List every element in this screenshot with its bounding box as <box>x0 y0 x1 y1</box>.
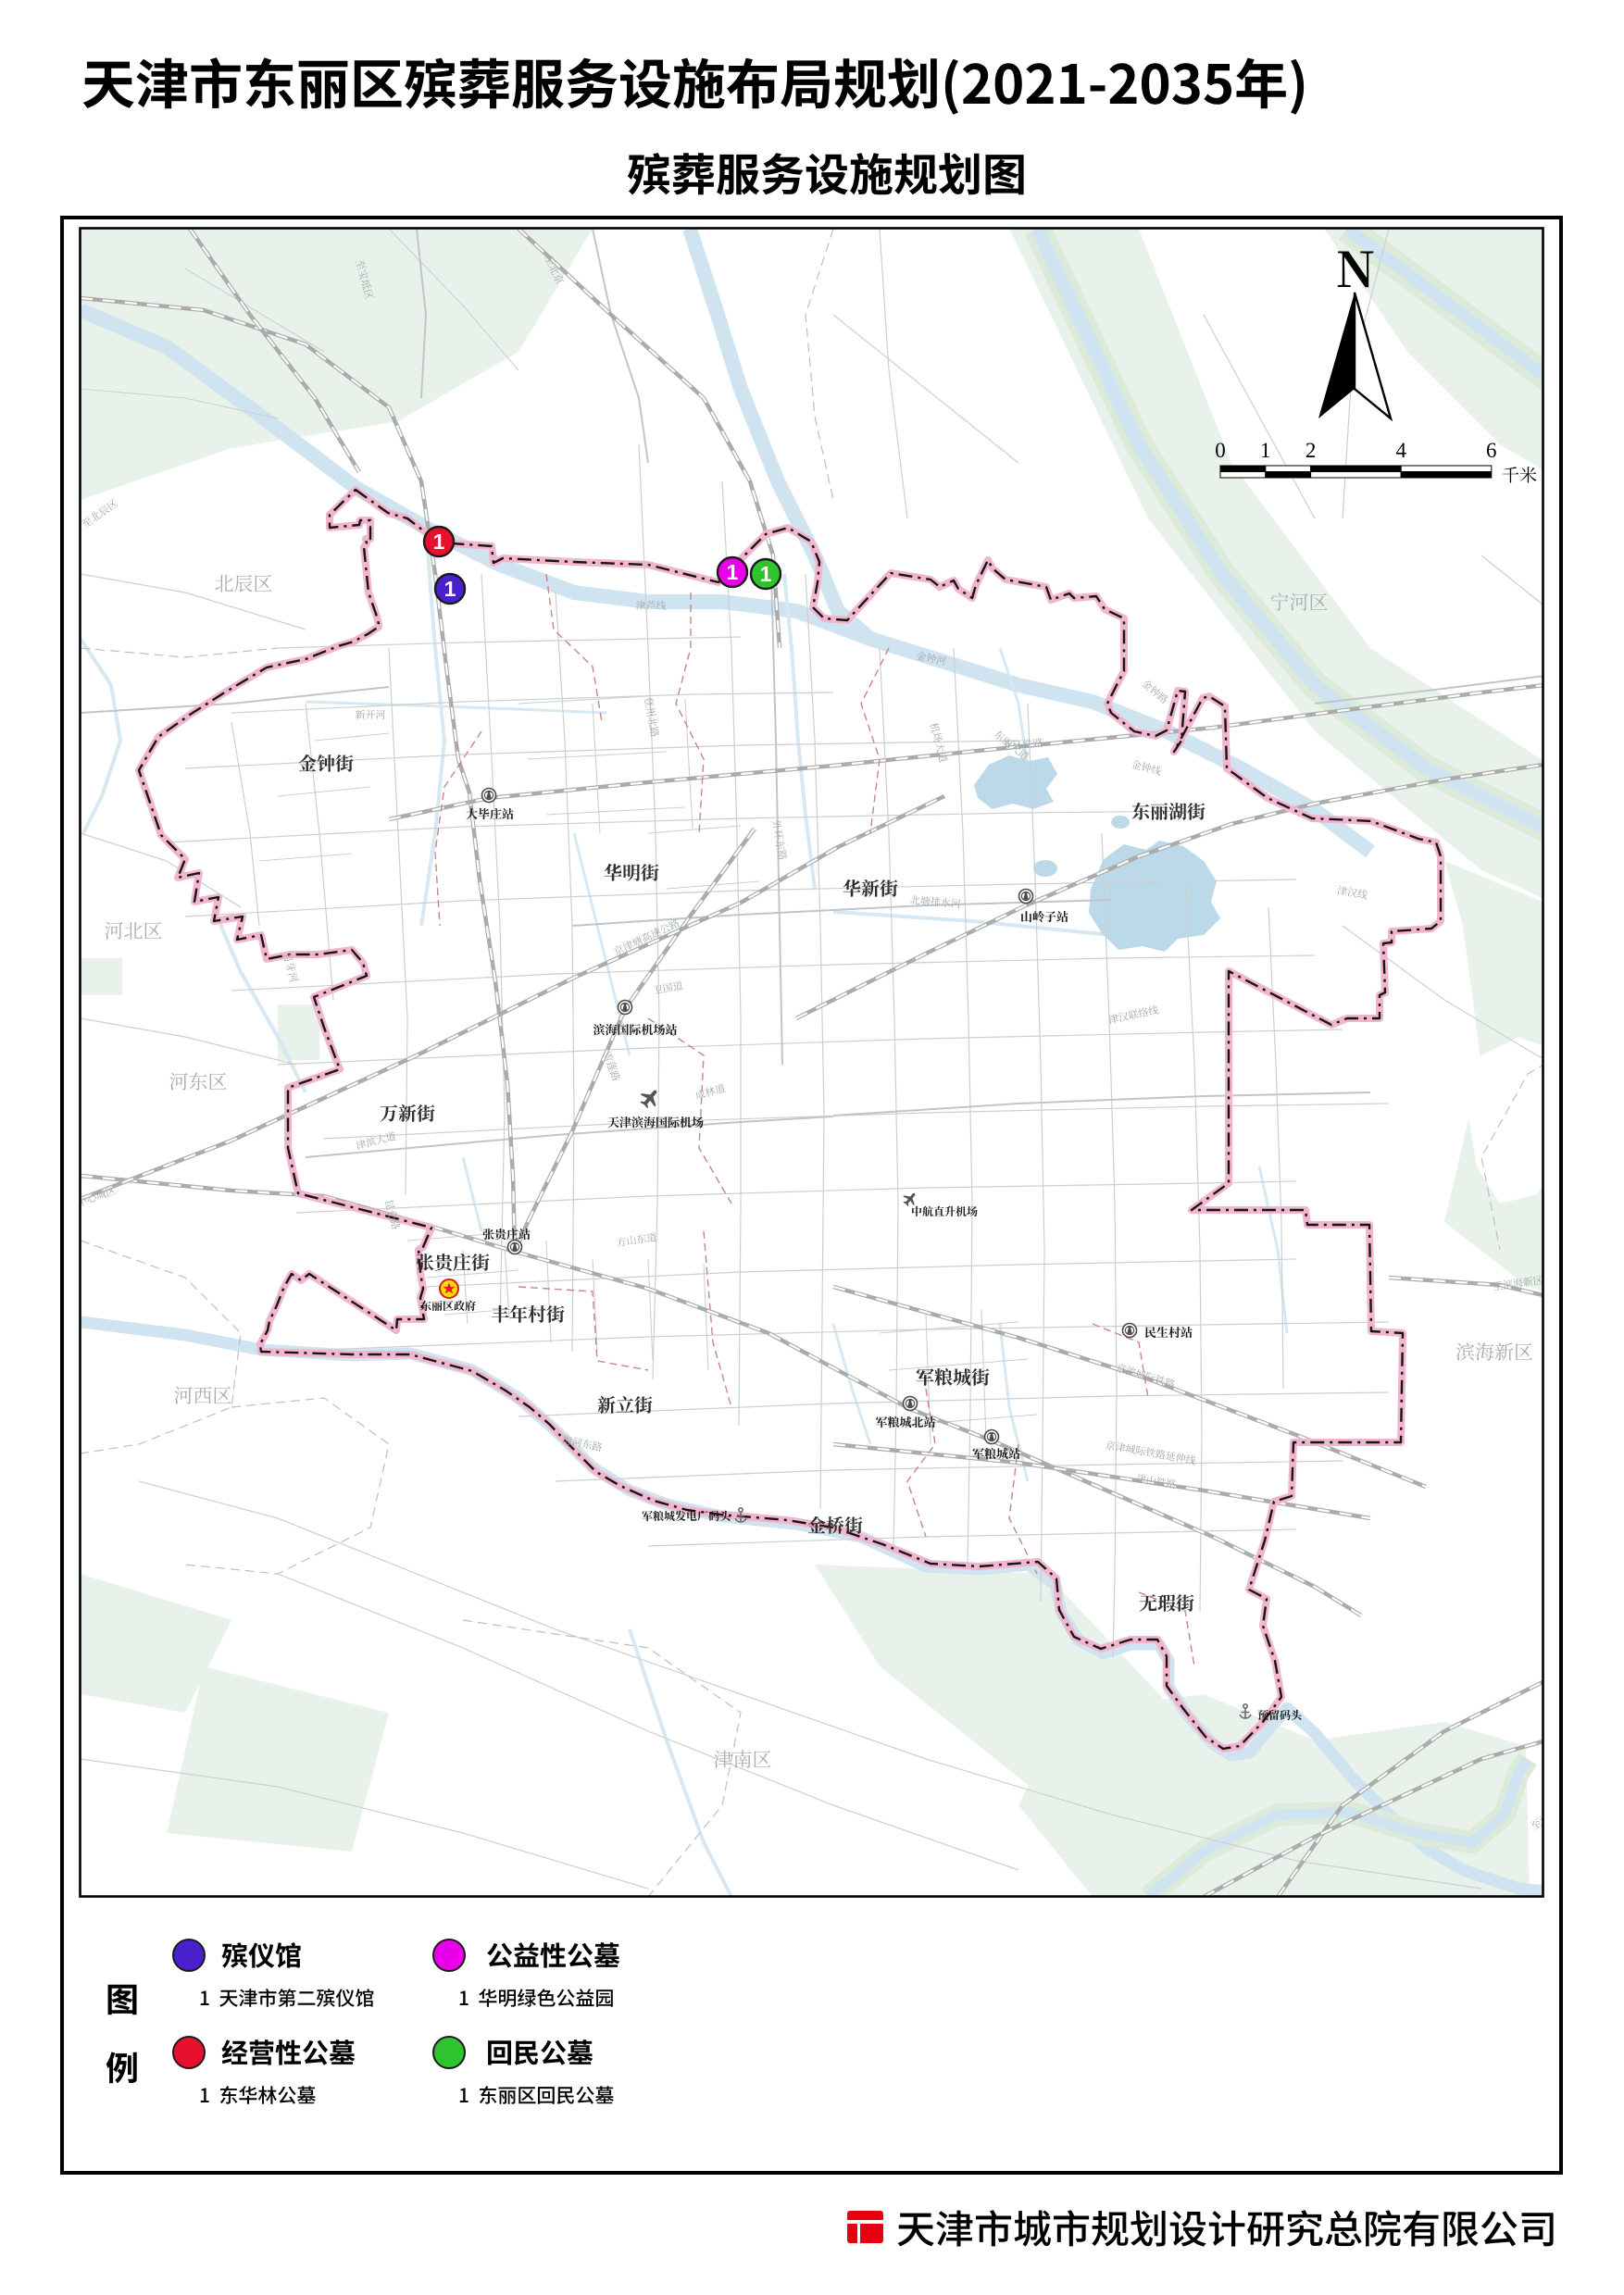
svg-text:1: 1 <box>433 530 445 554</box>
svg-text:0: 0 <box>1215 439 1226 462</box>
svg-text:2: 2 <box>1305 439 1317 462</box>
svg-text:4: 4 <box>1395 439 1406 462</box>
svg-text:1: 1 <box>727 560 739 584</box>
svg-text:6: 6 <box>1486 439 1497 462</box>
svg-text:1: 1 <box>760 562 772 586</box>
svg-text:1: 1 <box>1260 439 1271 462</box>
svg-text:1: 1 <box>444 577 456 601</box>
